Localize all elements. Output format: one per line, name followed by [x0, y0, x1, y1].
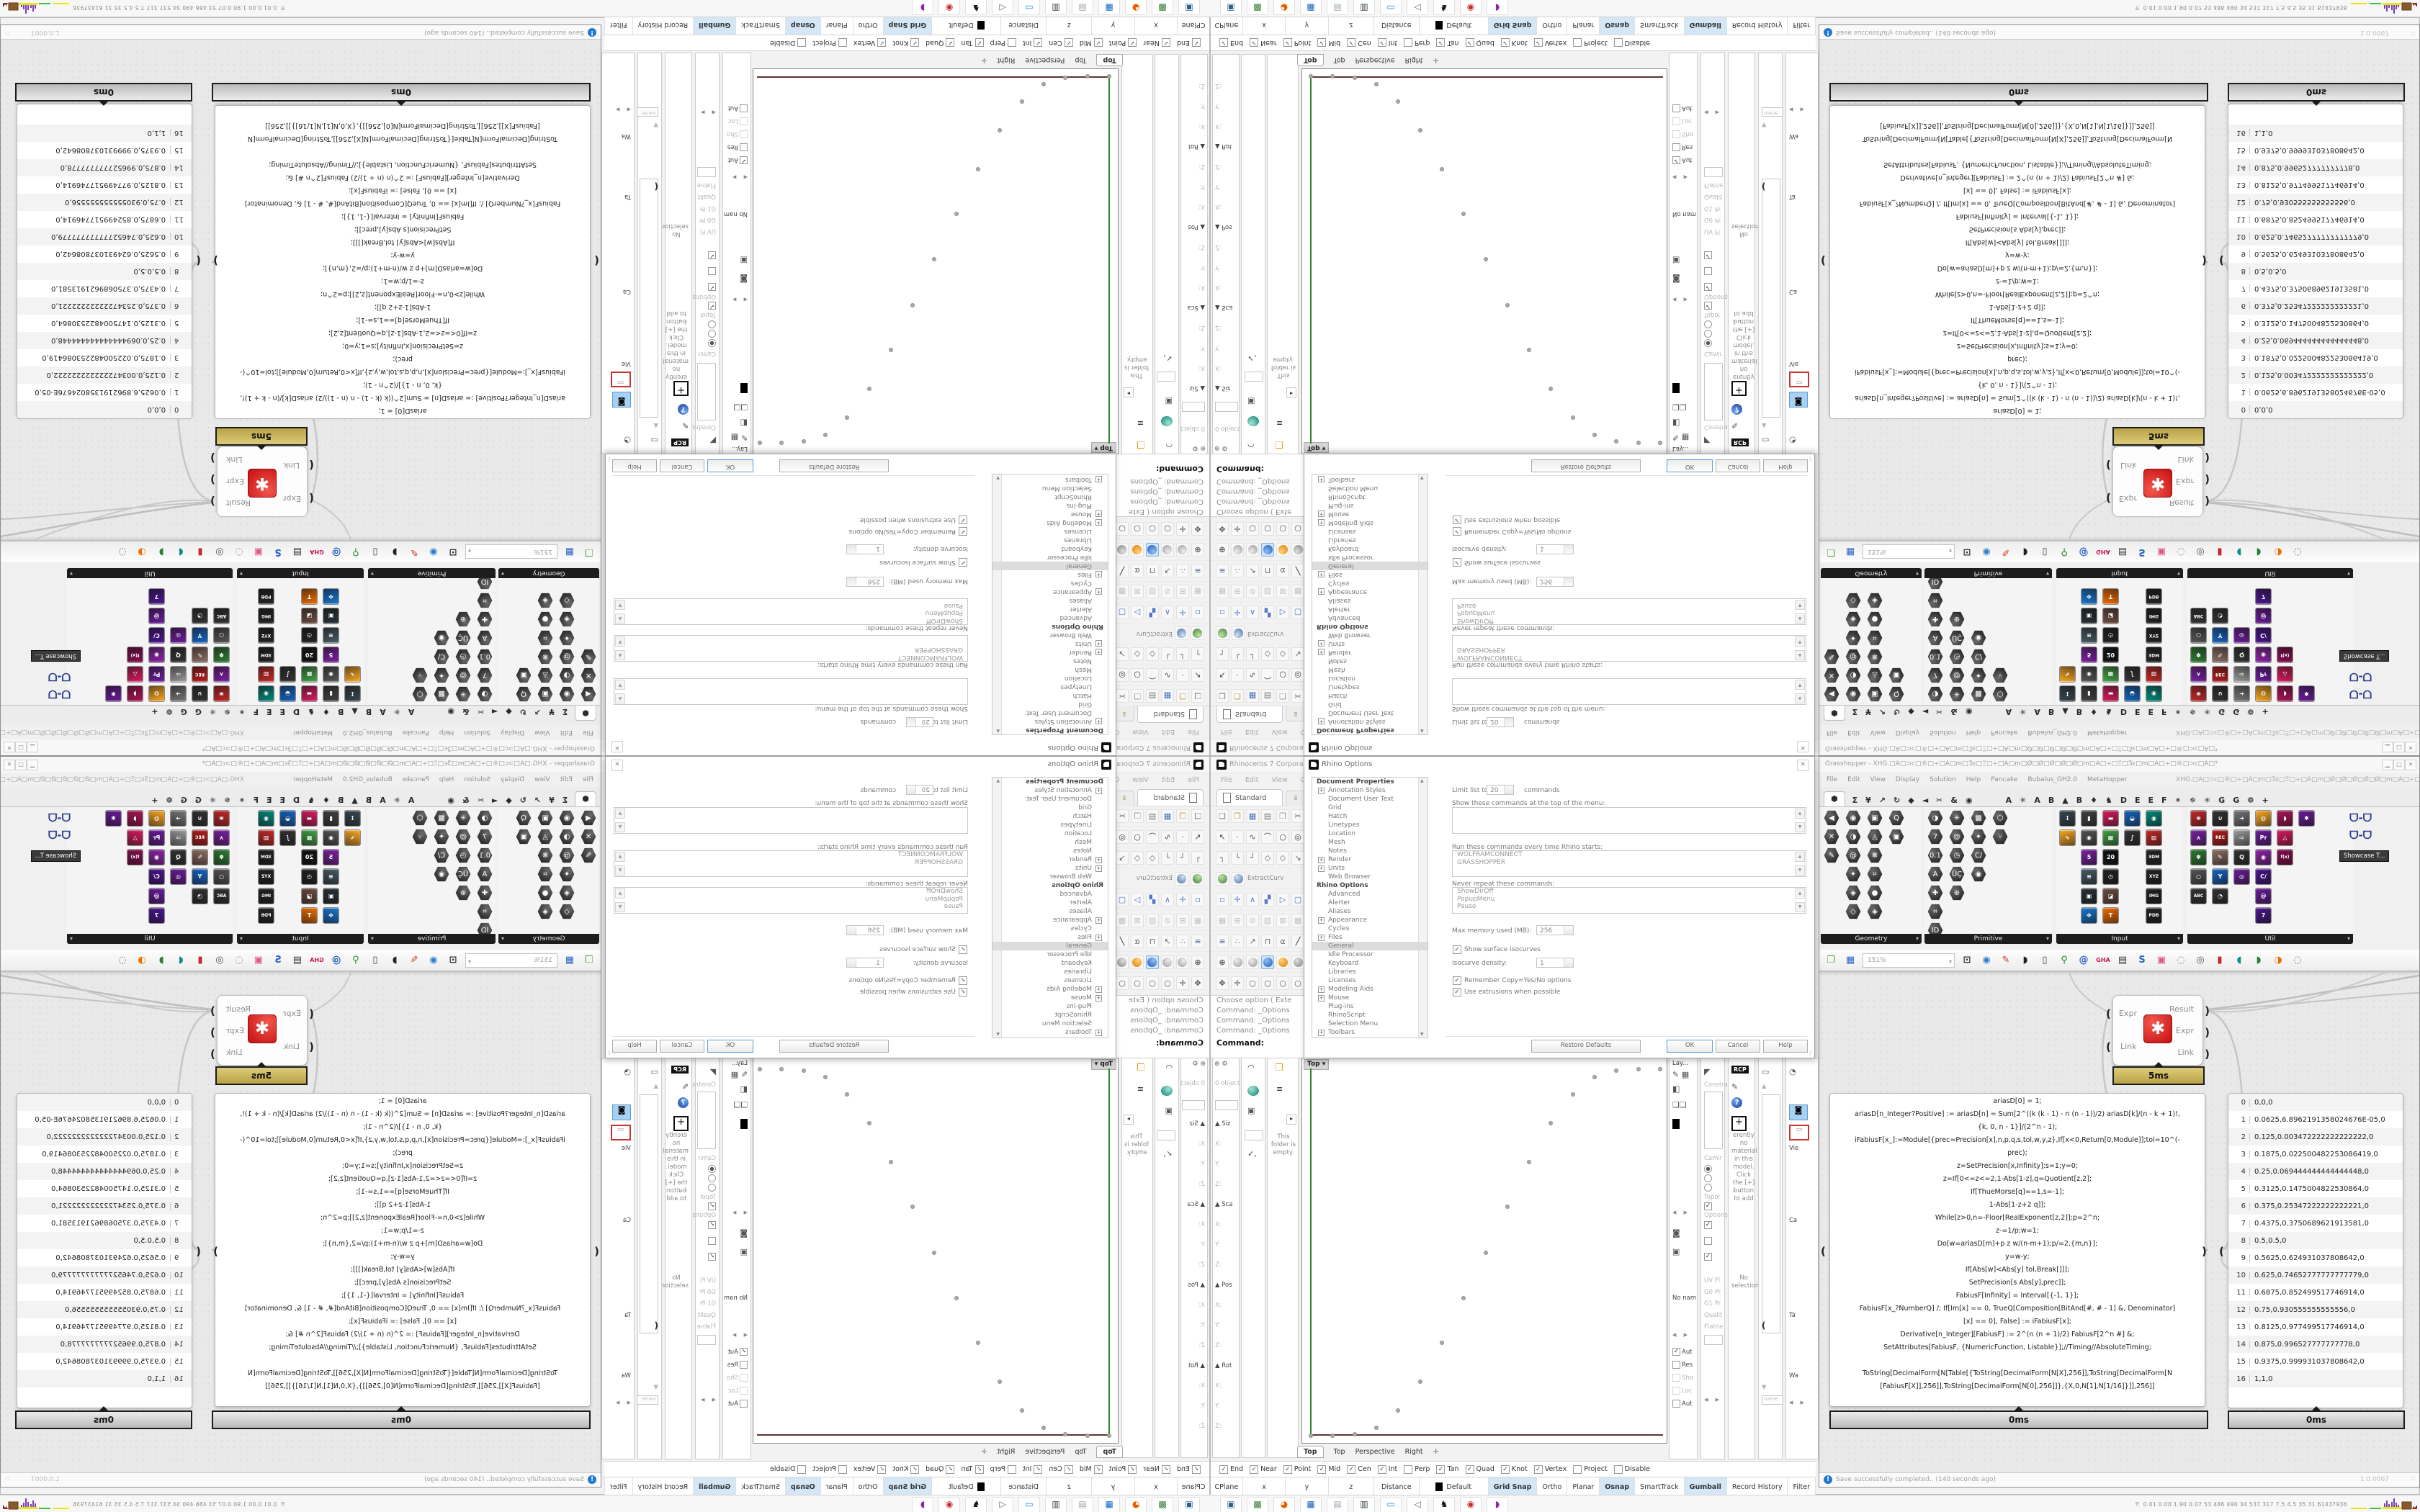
goggles-icon-2[interactable]: ᗜ‑ᗜ — [2349, 670, 2372, 683]
component-icon[interactable]: @ — [455, 667, 471, 683]
component-icon[interactable]: ✕ — [581, 829, 596, 845]
never-repeat-listbox[interactable]: ▲▼ ShowDirOffPopupMenuPause — [1452, 887, 1806, 914]
panel-listbox[interactable] — [640, 1094, 658, 1333]
component-icon[interactable]: PDB — [2146, 588, 2162, 605]
component-icon[interactable]: ∿ — [344, 829, 361, 846]
toolbar-icon[interactable]: ⊠ — [1131, 585, 1144, 599]
osnap-item-disable[interactable]: Disable — [770, 39, 806, 48]
osnap-item-mid[interactable]: ✓Mid — [1317, 1465, 1340, 1474]
ok-button[interactable]: OK — [707, 1040, 753, 1053]
menu-item-file[interactable]: File — [1188, 729, 1199, 737]
tree-item-advanced[interactable]: Advanced — [992, 613, 1108, 622]
gh-menu-item-display[interactable]: Display — [1896, 729, 1919, 736]
component-icon[interactable]: ▦ — [301, 666, 318, 683]
gh-toolbar-icon[interactable]: ▦ — [563, 953, 577, 968]
gh-toolbar-icon[interactable]: ⚲ — [2057, 545, 2071, 559]
data-table-panel[interactable]: 00,0,010.0625,6.8962191358024676E-05,020… — [17, 104, 192, 419]
maximize-button[interactable]: □ — [2393, 760, 2405, 770]
component-icon[interactable]: ⌗ — [477, 904, 493, 919]
display-button[interactable]: ▭ — [1789, 1125, 1809, 1140]
panel-icon[interactable]: ▣ — [740, 1247, 748, 1256]
tab-standard[interactable]: Standard — [1216, 789, 1283, 806]
gh-plugin-tab[interactable]: ✵ — [2189, 794, 2197, 806]
viewport-tab-top[interactable]: Top — [1075, 1448, 1086, 1456]
status-cell-cplane[interactable]: CPlane — [1211, 16, 1243, 35]
component-icon[interactable]: ◉ — [2146, 810, 2162, 827]
toolbar-icon[interactable]: ○ — [1261, 976, 1274, 990]
toolbar-icon[interactable]: ╱ — [1291, 564, 1304, 578]
toolbar-icon[interactable]: ↖ — [1191, 830, 1204, 844]
pager-arrows[interactable]: ◀ ▶ — [1672, 174, 1690, 180]
scroll-down-icon[interactable]: ▼ — [615, 822, 625, 832]
component-icon[interactable]: ● — [537, 611, 553, 627]
component-icon[interactable]: ❀ — [2190, 810, 2207, 827]
palette-footer[interactable]: Util▾ — [67, 934, 233, 944]
expand-icon[interactable]: + — [1318, 995, 1325, 1002]
mathematica-component[interactable]: ( ( Expr Link ✱ Result Expr Link ) ) ) — [217, 995, 308, 1066]
tab-secondary[interactable]: ᎒᎒ — [1114, 791, 1134, 806]
density-spinner[interactable]: 1 — [846, 958, 884, 968]
status-cell-distance[interactable]: Distance — [1374, 16, 1420, 35]
toolbar-icon[interactable]: · — [1231, 669, 1244, 683]
component-icon[interactable]: ✽ — [2190, 849, 2207, 865]
status-toggle-osnap[interactable]: Osnap — [785, 16, 820, 35]
help-button[interactable]: Help — [1763, 1040, 1808, 1053]
tree-item-units[interactable]: +Units — [1312, 639, 1428, 648]
osnap-checkbox[interactable] — [838, 1465, 847, 1474]
expand-icon[interactable]: + — [1095, 857, 1102, 863]
component-icon[interactable]: ✕ — [1824, 667, 1839, 683]
toolbar-icon[interactable] — [1216, 872, 1229, 886]
checkbox[interactable] — [740, 143, 748, 151]
gh-toolbar-icon[interactable]: ▯ — [2038, 545, 2052, 559]
status-toggle-gumball[interactable]: Gumball — [693, 1477, 735, 1496]
checkbox[interactable]: ✓ — [1672, 1348, 1680, 1356]
toolbar-icon[interactable]: ↘ — [1291, 851, 1304, 865]
tree-item-aliases[interactable]: Aliases — [992, 907, 1108, 916]
component-icon[interactable]: ⇨ — [2233, 829, 2250, 846]
toolbar-icon[interactable]: ⊘ — [1246, 585, 1259, 599]
component-icon[interactable]: ⊕ — [455, 611, 471, 627]
panel-icon[interactable]: ▣ — [1672, 256, 1680, 265]
gh-plugin-tab[interactable]: ❁ — [2246, 794, 2254, 806]
tab-secondary[interactable]: ᎒᎒ — [1286, 791, 1306, 806]
status-toggle-smarttrack[interactable]: SmartTrack — [735, 1477, 785, 1496]
gh-menu-item-view[interactable]: View — [1870, 729, 1886, 736]
viewport-tab-top[interactable]: Top — [1297, 1446, 1324, 1458]
component-icon[interactable]: ÜÇ — [455, 866, 471, 882]
status-cell-cplane[interactable]: CPlane — [1177, 16, 1209, 35]
toolbar-icon[interactable]: ✥ — [1216, 523, 1229, 536]
component-icon[interactable]: ✚ — [1927, 885, 1943, 901]
panel-icon[interactable]: ✎ — [1731, 420, 1738, 430]
gh-toolbar-icon[interactable]: ◉ — [1979, 953, 1994, 968]
gh-toolbar-icon[interactable]: ⊡ — [446, 953, 460, 968]
dialog-resize-grip[interactable]: ⫽ — [608, 455, 611, 462]
component-icon[interactable]: IMG — [258, 608, 274, 624]
palette-footer[interactable]: Input▾ — [237, 568, 364, 578]
component-icon[interactable]: @ — [559, 847, 575, 863]
gh-tab[interactable]: ↗ — [534, 706, 542, 718]
component-icon[interactable]: ✦ — [1845, 630, 1861, 646]
run-commands-listbox[interactable]: ▲▼ WOLFRAMCONNECTGRASSHOPPER — [614, 850, 968, 877]
toolbar-icon[interactable]: ❐ — [1276, 809, 1289, 823]
density-spinner[interactable]: 1 — [1536, 544, 1574, 554]
tree-item-files[interactable]: +Files — [1312, 933, 1428, 942]
osnap-checkbox[interactable] — [1614, 1465, 1623, 1474]
component-icon[interactable]: XYZ — [2146, 627, 2162, 644]
component-icon[interactable]: ◇ — [1845, 593, 1861, 608]
tree-item-toolbars[interactable]: +Toolbars — [1312, 475, 1428, 484]
component-icon[interactable]: ⇨ — [2233, 666, 2250, 683]
component-icon[interactable]: ◔ — [2212, 888, 2228, 904]
osnap-item-perp[interactable]: Perp — [990, 39, 1016, 48]
gh-toolbar-icon[interactable]: ◎ — [212, 545, 227, 559]
osnap-checkbox[interactable]: ✓ — [1065, 1465, 1073, 1474]
panel-icon[interactable]: ◧ — [1672, 1084, 1680, 1094]
component-icon[interactable]: ◬ — [537, 829, 553, 845]
scroll-up-icon[interactable]: ▲ — [1795, 852, 1805, 862]
taskbar-icon-package-manager[interactable]: ▩ — [1247, 0, 1268, 15]
component-icon[interactable]: ▣ — [323, 888, 339, 904]
taskbar-icon-memory-64[interactable]: ▦ — [1300, 1497, 1322, 1512]
osnap-checkbox[interactable]: ✓ — [1192, 39, 1201, 48]
gh-plugin-tab[interactable]: A — [2033, 706, 2041, 718]
menu-item-view[interactable]: View — [1271, 729, 1288, 737]
data-table-panel[interactable]: 00,0,010.0625,6.8962191358024676E-05,020… — [17, 1093, 192, 1408]
toolbar-icon[interactable] — [1161, 955, 1174, 969]
toolbar-icon[interactable]: ○ — [1146, 976, 1159, 990]
status-cell-cplane[interactable]: CPlane — [1211, 1477, 1243, 1496]
help-button[interactable]: Help — [1763, 459, 1808, 472]
tree-item-document-properties[interactable]: Document Properties — [992, 778, 1108, 786]
radio-button[interactable] — [708, 1184, 716, 1192]
component-icon[interactable]: ◉ — [2255, 849, 2272, 865]
osnap-checkbox[interactable]: ✓ — [910, 1465, 919, 1474]
toolbar-icon[interactable]: ✛ — [1231, 893, 1244, 906]
component-icon[interactable]: C/ — [2255, 868, 2272, 885]
toolbar-icon[interactable]: ▦ — [1161, 690, 1174, 703]
component-icon[interactable]: ◒ — [279, 810, 296, 827]
component-icon[interactable]: ◇ — [559, 904, 575, 919]
radio-button[interactable] — [1704, 1174, 1712, 1182]
component-icon[interactable]: ⌗ — [1867, 866, 1883, 882]
gh-plugin-tab[interactable]: ♞ — [307, 794, 315, 806]
gh-menu-item-pancake[interactable]: Pancake — [1991, 776, 2017, 783]
component-icon[interactable]: ◈ — [537, 904, 553, 919]
goggles-icon[interactable]: ᗜ‑ᗜ — [48, 688, 71, 701]
taskbar-icon-display-config[interactable]: ▣ — [1178, 0, 1200, 15]
status-toggle-filter[interactable]: Filter — [1788, 16, 1816, 35]
toolbar-icon[interactable]: ⊠ — [1276, 585, 1289, 599]
toolbar-icon[interactable]: ∿ — [1161, 669, 1174, 683]
component-icon[interactable]: ◍ — [148, 685, 165, 702]
status-toggle-record-history[interactable]: Record History — [632, 16, 694, 35]
toolbar-icon[interactable]: ⊘ — [1161, 585, 1174, 599]
menu-item-edit[interactable]: Edit — [1245, 729, 1258, 737]
tree-item-selection-menu[interactable]: Selection Menu — [1312, 484, 1428, 492]
code-panel[interactable]: ariasD[0] = 1;ariasD[n_Integer?Positive]… — [215, 105, 591, 419]
toolbar-icon[interactable]: ▞ — [1261, 893, 1274, 906]
gh-tab[interactable]: Σ — [1852, 794, 1859, 806]
panel-icon[interactable]: ▭ — [651, 436, 658, 445]
gh-toolbar-icon[interactable]: ✎ — [407, 953, 421, 968]
radio-button[interactable] — [708, 339, 716, 347]
tree-item-document-user-text[interactable]: Document User Text — [1312, 795, 1428, 804]
panel-listbox[interactable] — [1762, 179, 1780, 418]
dialog-close-icon[interactable]: ✕ — [611, 760, 623, 771]
component-icon[interactable]: ⌗ — [537, 866, 553, 882]
osnap-item-project[interactable]: Project — [1573, 1465, 1608, 1474]
tree-item-linetypes[interactable]: Linetypes — [1312, 683, 1428, 691]
status-toggle-grid-snap[interactable]: Grid Snap — [883, 16, 932, 35]
toolbar-icon[interactable]: ○ — [1146, 523, 1159, 536]
gh-plugin-tab[interactable]: ♦ — [2089, 706, 2098, 718]
osnap-item-point[interactable]: ✓Point — [1283, 1465, 1312, 1474]
restore-defaults-button[interactable]: Restore Defaults — [779, 1040, 889, 1053]
component-icon[interactable]: ◷ — [301, 627, 318, 644]
toolbar-icon[interactable]: ▫ — [1216, 606, 1229, 620]
toolbar-icon[interactable]: ┘ — [1246, 648, 1259, 662]
component-icon[interactable]: IMG — [2146, 888, 2162, 904]
osnap-checkbox[interactable]: ✓ — [1094, 1465, 1103, 1474]
pager-arrows[interactable]: ◀ ▶ — [698, 109, 716, 115]
gh-menu-item-edit[interactable]: Edit — [560, 729, 573, 736]
toolbar-icon[interactable]: ⊞ — [1176, 585, 1189, 599]
toolbar-icon[interactable]: ✂ — [1116, 690, 1129, 703]
gh-tab[interactable]: ↻ — [1893, 706, 1901, 718]
show-commands-listbox[interactable]: ▲▼ — [1452, 678, 1806, 705]
tree-item-general[interactable]: General — [992, 942, 1108, 950]
toolbar-icon[interactable]: ○ — [1276, 830, 1289, 844]
component-icon[interactable]: C/ — [2255, 627, 2272, 644]
toolbar-icon[interactable]: ≡ — [1191, 564, 1204, 578]
panel-listbox[interactable] — [697, 363, 716, 420]
toolbar-icon[interactable]: ○ — [1131, 669, 1144, 683]
taskbar-icon-display-config[interactable]: ▣ — [1220, 0, 1242, 15]
checkbox[interactable]: ✓ — [708, 251, 716, 259]
component-icon[interactable]: ▣ — [537, 810, 553, 826]
status-cell-x[interactable]: x — [1243, 16, 1286, 35]
component-icon[interactable]: ● — [1867, 611, 1883, 627]
component-icon[interactable]: ◎ — [170, 868, 187, 885]
tree-item-document-user-text[interactable]: Document User Text — [992, 795, 1108, 804]
component-icon[interactable]: ◷ — [301, 868, 318, 885]
run-commands-listbox[interactable]: ▲▼ WOLFRAMCONNECTGRASSHOPPER — [614, 635, 968, 662]
taskbar-icon-firefox[interactable]: ◕ — [1273, 0, 1295, 15]
status-cell-distance[interactable]: Distance — [1000, 16, 1046, 35]
expand-icon[interactable]: + — [1318, 519, 1325, 526]
component-icon[interactable]: ◀ — [581, 686, 596, 702]
component-icon[interactable]: 0.1 — [477, 649, 493, 665]
component-icon[interactable]: ◈ — [1867, 593, 1883, 608]
minimize-button[interactable]: ▁ — [2382, 760, 2393, 770]
checkbox[interactable]: ✓ — [708, 1221, 716, 1229]
toolbar-icon[interactable]: ≡ — [1216, 564, 1229, 578]
component-icon[interactable]: ✦ — [1971, 667, 1986, 683]
tree-item-selection-menu[interactable]: Selection Menu — [992, 484, 1108, 492]
component-icon[interactable]: 5 — [323, 647, 339, 663]
component-icon[interactable]: T — [301, 907, 318, 924]
data-panel-input-port[interactable]: ( — [196, 254, 201, 267]
gh-toolbar-icon[interactable]: S — [2135, 545, 2149, 559]
gh-plugin-tab[interactable]: ✳ — [2203, 706, 2211, 718]
component-icon[interactable]: 7 — [2255, 588, 2272, 605]
component-icon[interactable]: ❀ — [2190, 685, 2207, 702]
toolbar-icon[interactable]: ↘ — [1116, 648, 1129, 662]
toolbar-icon[interactable]: ↗ — [1246, 935, 1259, 948]
component-icon[interactable]: T — [2102, 588, 2119, 605]
component-icon[interactable]: ◷ — [455, 847, 471, 863]
goggles-icon-2[interactable]: ᗜ‑ᗜ — [48, 670, 71, 683]
show-commands-listbox[interactable]: ▲▼ — [1452, 807, 1806, 834]
component-icon[interactable]: ▥ — [258, 829, 274, 846]
component-icon[interactable]: ▣ — [1888, 829, 1904, 845]
taskbar-icon-gimp[interactable]: ♞ — [965, 0, 987, 15]
osnap-checkbox[interactable]: ✓ — [1466, 1465, 1474, 1474]
toolbar-icon[interactable]: ⊓ — [1261, 935, 1274, 948]
gh-toolbar-icon[interactable]: ◎ — [2193, 953, 2208, 968]
palette-footer[interactable]: Util▾ — [67, 568, 233, 578]
toolbar-icon[interactable]: ⊓ — [1146, 935, 1159, 948]
tree-item-rhino-options[interactable]: Rhino Options — [992, 881, 1108, 890]
component-icon[interactable]: ◬ — [1867, 667, 1883, 683]
gh-plugin-tab[interactable]: + — [2261, 706, 2269, 718]
component-icon[interactable]: ⬡ — [412, 810, 428, 826]
tree-item-hatch[interactable]: Hatch — [1312, 812, 1428, 821]
gh-toolbar-icon[interactable]: ◌ — [2290, 953, 2305, 968]
scroll-up-icon[interactable]: ▲ — [615, 650, 625, 660]
expand-icon[interactable]: + — [1095, 718, 1102, 724]
name-input[interactable]: name — [1762, 1395, 1783, 1405]
component-icon[interactable]: ABC — [2190, 608, 2207, 624]
gh-plugin-tab[interactable]: A — [408, 794, 416, 806]
gh-plugin-tab[interactable]: B — [2048, 794, 2055, 806]
tree-item-cycles[interactable]: Cycles — [1312, 924, 1428, 933]
toolbar-icon[interactable]: ❏ — [1216, 690, 1229, 703]
tree-item-advanced[interactable]: Advanced — [1312, 613, 1428, 622]
panel-listbox[interactable] — [1704, 167, 1723, 177]
gh-tab[interactable]: ◉ — [1965, 794, 1973, 806]
goggles-icon-2[interactable]: ᗜ‑ᗜ — [48, 829, 71, 842]
toolbar-icon[interactable]: ✛ — [1176, 893, 1189, 906]
status-toggle-smarttrack[interactable]: SmartTrack — [1635, 16, 1685, 35]
toolbar-icon[interactable]: ✂ — [1116, 809, 1129, 823]
gh-plugin-tab[interactable]: E — [2134, 706, 2141, 718]
component-icon[interactable]: ✎ — [1824, 847, 1839, 863]
gh-toolbar-icon[interactable]: ◗ — [2018, 953, 2033, 968]
component-icon[interactable]: 20 — [301, 647, 318, 663]
limit-spinner[interactable]: 20 — [906, 785, 933, 795]
component-icon[interactable]: 20 — [2102, 849, 2119, 865]
help-button[interactable]: Help — [612, 459, 657, 472]
toolbar-icon[interactable]: α — [1276, 935, 1289, 948]
tree-item-modeling-aids[interactable]: +Modeling Aids — [992, 518, 1108, 527]
toolbar-icon[interactable] — [1175, 872, 1188, 886]
tree-item-web-browser[interactable]: Web Browser — [1312, 631, 1428, 639]
status-cell-z[interactable]: z — [1046, 16, 1091, 35]
expand-icon[interactable]: + — [1318, 640, 1325, 647]
gh-toolbar-icon[interactable]: ❐ — [582, 545, 596, 559]
tree-item-render[interactable]: +Render — [992, 855, 1108, 864]
gh-tab[interactable]: ↻ — [1893, 794, 1901, 806]
gh-plugin-tab[interactable]: F — [2161, 706, 2168, 718]
toolbar-icon[interactable]: ◇ — [1131, 851, 1144, 865]
display-button[interactable]: ▭ — [611, 372, 631, 387]
component-icon[interactable]: ◉ — [258, 810, 274, 827]
gh-menu-item-help[interactable]: Help — [1966, 729, 1981, 736]
component-icon[interactable]: A — [1927, 630, 1943, 646]
hamburger-icon[interactable]: ≡ — [1137, 418, 1144, 428]
panel-icon[interactable]: ✓, — [1247, 1149, 1257, 1158]
gh-canvas[interactable]: ( ( Expr Link ✱ Result Expr Link ) ) ) 5… — [1, 971, 601, 1475]
gh-menu-item-view[interactable]: View — [534, 776, 550, 783]
gh-menu-item-metahopper[interactable]: MetaHopper — [2087, 776, 2127, 783]
toolbar-icon[interactable]: ▦ — [1191, 914, 1204, 927]
osnap-checkbox[interactable]: ✓ — [1065, 39, 1073, 48]
gh-menu-item-edit[interactable]: Edit — [1847, 776, 1860, 783]
checkbox[interactable]: ✓ — [1704, 251, 1712, 259]
panel-icon[interactable]: ✎ — [1731, 1082, 1738, 1092]
toolbar-icon[interactable] — [1261, 544, 1274, 557]
toolbar-icon[interactable]: ❐ — [1176, 809, 1189, 823]
component-icon[interactable]: ◗ — [2277, 810, 2293, 827]
tree-item-idle-processor[interactable]: Idle Processor — [1312, 553, 1428, 562]
component-icon[interactable]: ✎ — [2212, 849, 2228, 865]
osnap-checkbox[interactable]: ✓ — [1501, 39, 1510, 48]
component-icon[interactable]: ⇨ — [170, 666, 187, 683]
tree-item-libraries[interactable]: Libraries — [992, 968, 1108, 976]
component-icon[interactable]: A — [477, 630, 493, 646]
toolbar-icon[interactable]: ╱ — [1116, 564, 1129, 578]
component-icon[interactable]: ∫ — [279, 829, 296, 846]
toolbar-icon[interactable] — [1146, 544, 1159, 557]
status-cell-z[interactable]: z — [1329, 16, 1374, 35]
gh-tab[interactable]: ✂ — [477, 794, 485, 806]
component-icon[interactable]: ⇨ — [170, 829, 187, 846]
minimize-button[interactable]: ▁ — [27, 742, 38, 752]
menu-item-view[interactable]: View — [1132, 729, 1149, 737]
component-icon[interactable]: ◒ — [2124, 810, 2141, 827]
folder-icon[interactable]: ❐ — [1137, 438, 1145, 449]
viewport-tab-top[interactable]: Top — [1096, 55, 1123, 67]
dialog-resize-grip[interactable]: ⫽ — [1809, 455, 1812, 462]
component-icon[interactable]: C/ — [1971, 649, 1986, 665]
camera-button[interactable]: ◙ — [1789, 1104, 1808, 1120]
tree-item-alerter[interactable]: Alerter — [992, 899, 1108, 907]
tree-item-render[interactable]: +Render — [992, 648, 1108, 657]
radio-button[interactable] — [708, 1174, 716, 1182]
component-icon[interactable]: ✦ — [434, 829, 449, 845]
teal-sphere-icon[interactable] — [1247, 416, 1259, 426]
palette-dropdown-icon[interactable]: ▾ — [240, 568, 243, 578]
gh-toolbar-icon[interactable]: ✎ — [1999, 545, 2013, 559]
toolbar-icon[interactable]: ✛ — [1176, 976, 1189, 990]
gh-plugin-tab[interactable]: G — [2232, 794, 2240, 806]
toolbar-icon[interactable]: ◇ — [1261, 851, 1274, 865]
folder-icon[interactable]: ❐ — [1275, 1063, 1283, 1074]
tree-item-rhinoscript[interactable]: RhinoScript — [1312, 492, 1428, 501]
osnap-checkbox[interactable] — [1573, 1465, 1582, 1474]
tree-item-plug-ins[interactable]: Plug-ins — [1312, 501, 1428, 510]
toolbar-icon[interactable]: ✛ — [1176, 523, 1189, 536]
tree-item-notes[interactable]: Notes — [1312, 657, 1428, 665]
gh-tab[interactable]: ◆ — [1907, 706, 1914, 718]
panel-icon[interactable]: ✎ — [682, 420, 689, 430]
tree-item-annotation-styles[interactable]: +Annotation Styles — [1312, 717, 1428, 726]
toolbar-icon[interactable]: ○ — [1116, 523, 1129, 536]
data-panel-input-port[interactable]: ( — [2219, 254, 2224, 267]
